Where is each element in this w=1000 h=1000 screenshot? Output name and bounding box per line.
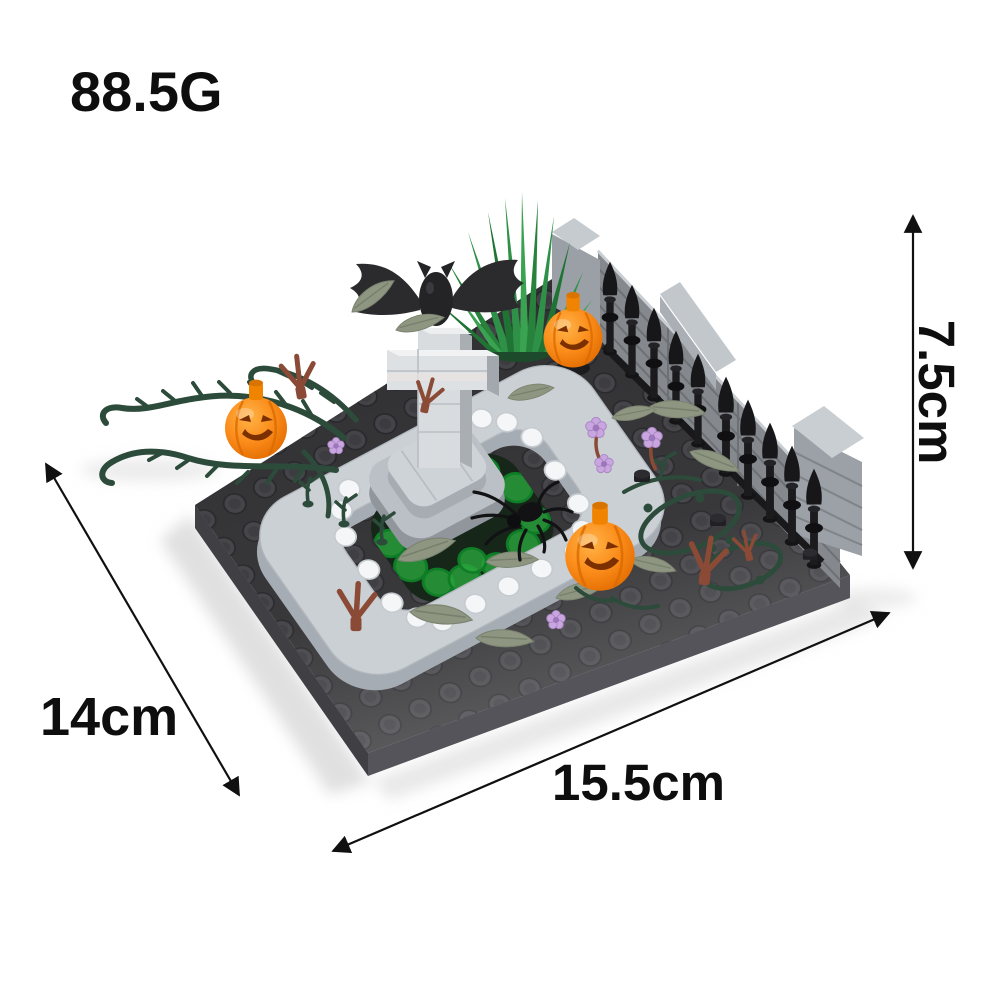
length-label: 15.5cm <box>552 757 725 808</box>
halloween-graveyard-build-illustration <box>0 0 1000 1000</box>
product-photo: 88.5G 7.5cm 14cm 15.5cm <box>0 0 1000 1000</box>
width-label: 14cm <box>40 690 178 744</box>
height-label: 7.5cm <box>906 310 966 474</box>
weight-label: 88.5G <box>70 64 223 120</box>
